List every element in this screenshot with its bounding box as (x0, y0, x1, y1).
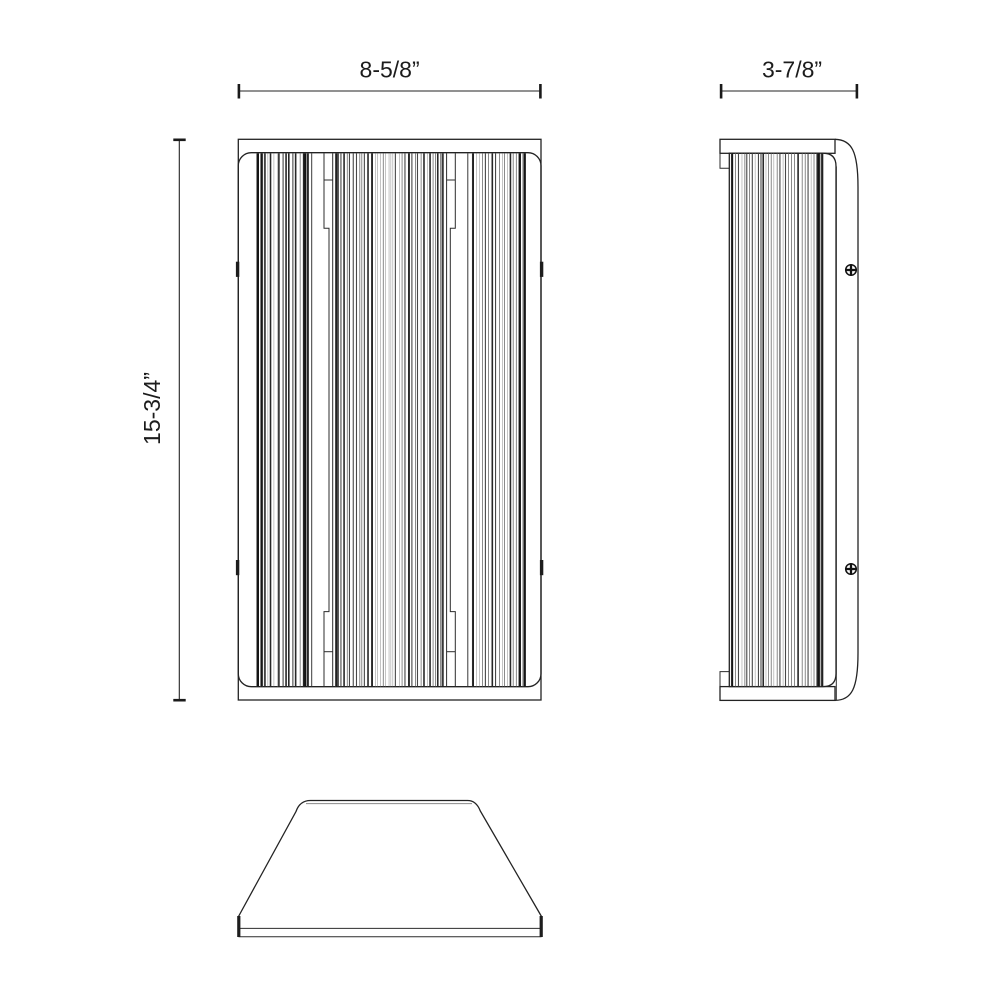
drawing-svg: 8-5/8” 3-7/8” 15-3/4” (0, 0, 1000, 1000)
wall-plate-outline (835, 139, 858, 700)
mounting-screw-bottom (845, 563, 856, 574)
rod-left-stepped-edge (324, 153, 329, 686)
side-tab-right-lower (540, 560, 543, 575)
bottom-view (237, 801, 543, 938)
side-view (720, 139, 858, 700)
dimension-height: 15-3/4” (139, 140, 186, 700)
technical-drawing-page: 8-5/8” 3-7/8” 15-3/4” (0, 0, 1000, 1000)
dim-width-label: 8-5/8” (360, 57, 420, 83)
ribbed-glass-layer (257, 153, 823, 686)
ribbed-glass-front-left (257, 153, 308, 686)
side-tab-right-upper (540, 262, 543, 277)
mounting-rod-right (447, 153, 456, 686)
ribbed-glass-side (732, 153, 823, 686)
bottom-shade-profile (239, 801, 542, 917)
ribbed-glass-front-middle (336, 153, 443, 686)
dimension-depth: 3-7/8” (721, 57, 858, 99)
rod-right-stepped-edge (450, 153, 455, 686)
side-tab-left-upper (236, 262, 239, 277)
side-glass-shade-outline (729, 153, 836, 686)
side-bottom-cap-lip (720, 672, 729, 687)
side-top-end-cap (720, 139, 835, 153)
front-view (236, 139, 543, 700)
backplate-end-tab-left (237, 916, 240, 937)
side-bottom-end-cap (720, 687, 835, 701)
dim-depth-label: 3-7/8” (762, 57, 822, 83)
side-tab-left-lower (236, 560, 239, 575)
backplate-end-tab-right (540, 916, 543, 937)
mounting-rod-left (324, 153, 333, 686)
dimension-width: 8-5/8” (238, 57, 541, 99)
mounting-screw-top (845, 264, 856, 275)
side-top-cap-lip (720, 153, 729, 168)
ribbed-glass-front-right (473, 153, 526, 686)
dim-height-label: 15-3/4” (139, 372, 165, 445)
